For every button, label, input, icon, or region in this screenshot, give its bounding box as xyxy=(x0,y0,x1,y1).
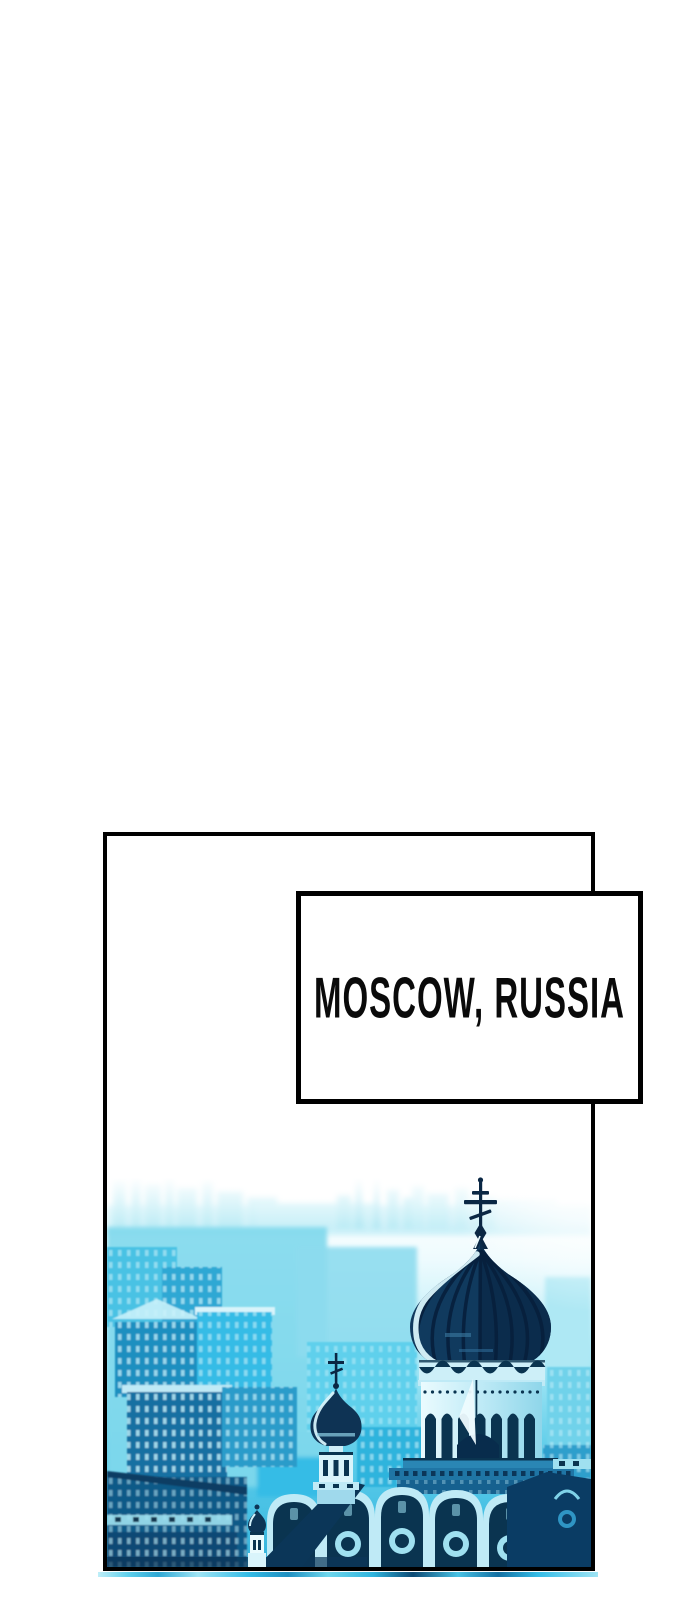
dome-trim xyxy=(419,1360,545,1382)
caption-box: MOSCOW, RUSSIA xyxy=(296,891,643,1104)
next-panel-peek xyxy=(98,1572,598,1577)
drum xyxy=(418,1379,545,1458)
caption-text: MOSCOW, RUSSIA xyxy=(314,964,625,1031)
moscow-cityscape-illustration xyxy=(107,1127,591,1567)
page-background: MOSCOW, RUSSIA xyxy=(0,0,690,1600)
